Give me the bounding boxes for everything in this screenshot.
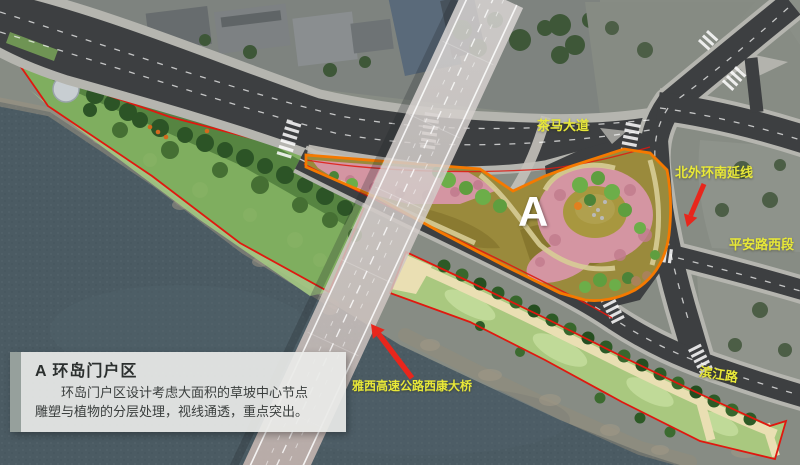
info-box-body-line1: 环岛门户区设计考虑大面积的草坡中心节点 — [35, 384, 336, 403]
label-pingan-road-west: 平安路西段 — [729, 237, 794, 252]
label-yaxi-bridge: 雅西高速公路西康大桥 — [351, 378, 473, 393]
info-box-title: A 环岛门户区 — [35, 357, 336, 381]
zone-a-info-box: A 环岛门户区 环岛门户区设计考虑大面积的草坡中心节点 雕塑与植物的分层处理，视… — [10, 352, 346, 432]
label-beiwaihuan-extension: 北外环南延线 — [675, 165, 753, 180]
info-box-body: 环岛门户区设计考虑大面积的草坡中心节点 雕塑与植物的分层处理，视线通透，重点突出… — [35, 384, 336, 422]
info-box-body-line2: 雕塑与植物的分层处理，视线通透，重点突出。 — [35, 403, 336, 422]
orange-tree — [574, 202, 582, 210]
label-chama-avenue: 茶马大道 — [537, 118, 589, 133]
landscape-plan-screenshot: A 茶马大道 北外环南延线 平安路西段 滨江路 雅西高速公路西康大桥 A 环岛门… — [0, 0, 800, 465]
zone-a-letter: A — [518, 188, 548, 235]
